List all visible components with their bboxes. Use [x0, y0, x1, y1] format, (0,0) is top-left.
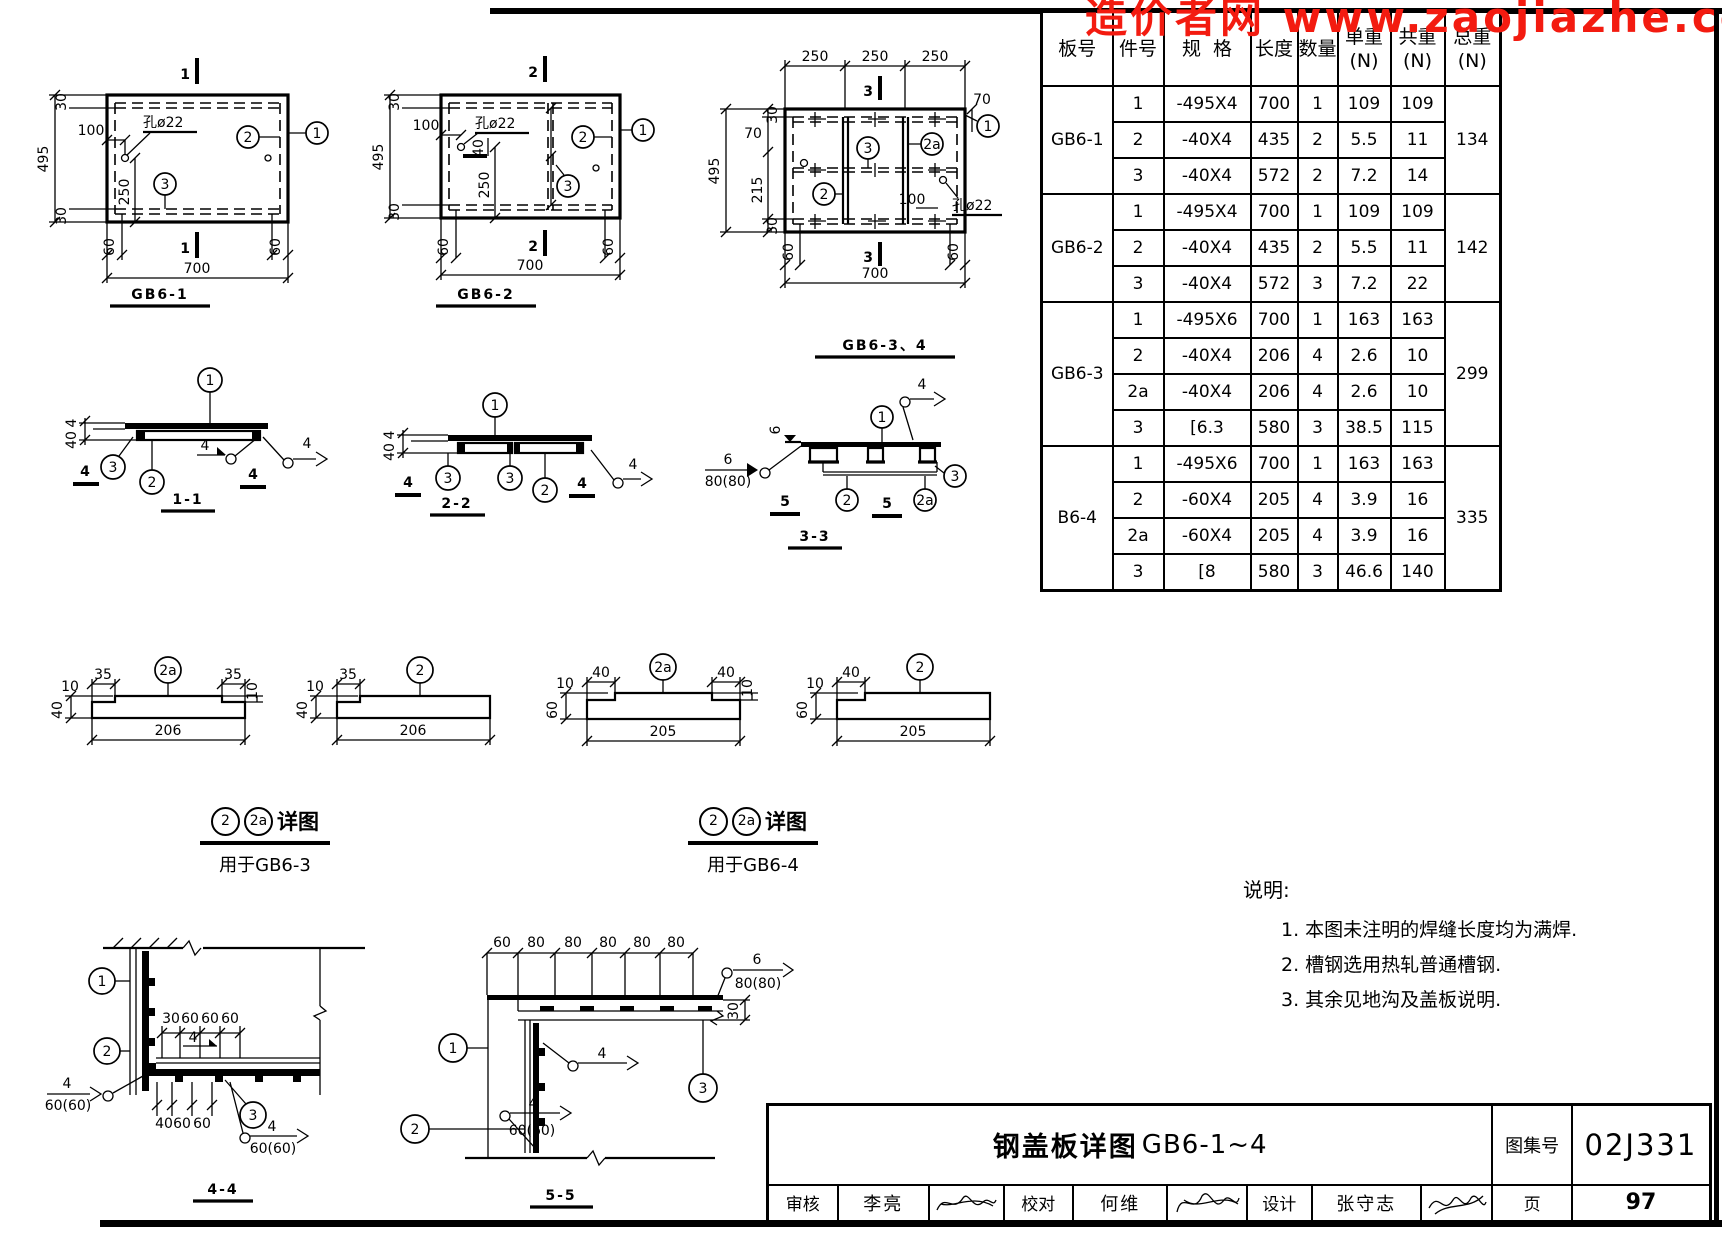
signature-icon — [1172, 1188, 1242, 1218]
callout-2a: 2a — [923, 137, 941, 153]
dim-100: 100 — [899, 192, 926, 208]
dim-10-left: 10 — [806, 676, 824, 692]
sum-b6-4: 335 — [1445, 446, 1501, 591]
dim-700: 700 — [517, 258, 544, 274]
cut-right: 4 — [577, 476, 587, 492]
dim-215: 215 — [750, 177, 766, 204]
callouts: 3 3 2 — [436, 453, 557, 502]
dim-60: 60 — [493, 935, 511, 951]
sheet-title: 钢盖板详图 — [993, 1125, 1138, 1164]
sum-gb6-3: 299 — [1445, 302, 1501, 446]
check-label: 校对 — [1005, 1186, 1075, 1220]
dim-top-60c: 60 — [221, 1011, 239, 1027]
weld-right-num: 4 — [268, 1119, 277, 1135]
plate-section — [125, 423, 268, 440]
board-gb6-2: GB6-2 — [1042, 194, 1113, 302]
dim-60-left: 60 — [436, 238, 452, 256]
dim-40-left: 40 — [592, 665, 610, 681]
cut-right: 5 — [882, 496, 892, 512]
dim-10-left: 10 — [306, 679, 324, 695]
dim-30: 30 — [726, 1002, 742, 1020]
dim-30-bottom: 30 — [54, 207, 70, 225]
weld-6-den: 80(80) — [735, 976, 782, 992]
cut-label-top: 3 — [863, 84, 873, 100]
callout-3: 3 — [864, 141, 873, 157]
callout-3a: 3 — [444, 471, 453, 487]
dim-250-2: 250 — [862, 49, 889, 65]
drawing-gb6-2-plan: 2 2 495 30 30 100 40 250 60 60 700 孔ø22 … — [338, 40, 658, 315]
dimensions: 4 40 — [64, 416, 137, 449]
reviewer-name: 李亮 — [839, 1186, 930, 1220]
drawing-sheet: 造价者网 www.zaojiazhe.co 1 1 495 30 30 100 … — [0, 0, 1722, 1234]
section-label: 3-3 — [799, 529, 830, 545]
section-cut-marks: 3 3 — [863, 76, 882, 266]
design-label: 设计 — [1248, 1186, 1313, 1220]
drawing-detail-2-gb63: 2 35 10 40 206 — [280, 583, 505, 753]
dim-10-left: 10 — [556, 676, 574, 692]
designer-signature — [1422, 1186, 1494, 1220]
signature-icon — [933, 1188, 999, 1218]
dim-60: 60 — [795, 701, 811, 719]
cut-label-top: 2 — [528, 65, 538, 81]
dim-10-left: 10 — [61, 679, 79, 695]
dim-35-left: 35 — [94, 667, 112, 683]
callout-2a-badge: 2a — [244, 807, 273, 836]
callout-2: 2 — [411, 1122, 420, 1138]
weld-symbols: 4 6 80(80) — [705, 377, 945, 490]
section-label: 5-5 — [545, 1188, 576, 1204]
cut-left: 4 — [80, 464, 90, 480]
callout-2a: 2a — [654, 660, 672, 676]
weld-6-num: 6 — [753, 952, 762, 968]
hole-label: 孔ø22 — [143, 115, 183, 131]
dim-35-left: 35 — [339, 667, 357, 683]
dim-top-60b: 60 — [201, 1011, 219, 1027]
dim-700: 700 — [184, 261, 211, 277]
table-row: GB6-1 1-495X47001109109 134 — [1042, 86, 1501, 122]
atlas-number-cell: 02J331 — [1573, 1106, 1709, 1184]
dim-80d: 80 — [633, 935, 651, 951]
dim-40: 40 — [295, 701, 311, 719]
callout-2-badge: 2 — [699, 807, 728, 836]
callout-1: 1 — [206, 373, 215, 389]
weld-size-2: 4 — [303, 436, 312, 452]
section-cut-marks: 1 1 — [180, 58, 199, 258]
dimensions: 4 40 — [382, 428, 458, 461]
frame-right-line — [1714, 8, 1719, 1224]
callout-1: 1 — [984, 119, 993, 135]
callout-3: 3 — [249, 1108, 258, 1124]
weld-size: 4 — [629, 457, 638, 473]
sum-gb6-1: 134 — [1445, 86, 1501, 194]
callout-3: 3 — [564, 179, 573, 195]
drawing-detail-2a-gb63: 2a 35 35 10 40 10 206 — [35, 583, 270, 753]
dim-100: 100 — [413, 118, 440, 134]
callout-1: 1 — [639, 123, 648, 139]
dim-bot-40: 40 — [155, 1116, 173, 1132]
detail-caption-text: 详图 — [277, 806, 319, 836]
board-gb6-3: GB6-3 — [1042, 302, 1113, 446]
drawing-detail-2-gb64: 2 40 10 60 205 — [780, 583, 1005, 753]
callout-2: 2 — [244, 130, 253, 146]
weld-mid: 4 — [189, 1030, 198, 1046]
caption-underline — [200, 841, 330, 845]
cut-label-bottom: 1 — [180, 241, 190, 257]
callout-2: 2 — [820, 187, 829, 203]
dimensions: 40 10 60 205 — [795, 665, 995, 746]
weld-6-num: 6 — [724, 452, 733, 468]
weld-left-num: 4 — [63, 1076, 72, 1092]
dim-60-right: 60 — [268, 238, 284, 256]
table-row: GB6-3 1-495X67001163163 299 — [1042, 302, 1501, 338]
dim-35-right: 35 — [224, 667, 242, 683]
callout-1: 1 — [491, 398, 500, 414]
checker-name: 何维 — [1074, 1186, 1168, 1220]
dim-4: 4 — [64, 418, 80, 427]
notes-block: 说明: 1. 本图未注明的焊缝长度均为满焊. 2. 槽钢选用热轧普通槽钢. 3.… — [1243, 874, 1663, 1018]
dim-60-left: 60 — [102, 238, 118, 256]
dim-30-top: 30 — [765, 106, 781, 124]
dim-30-bottom: 30 — [387, 203, 403, 221]
note-item-1: 1. 本图未注明的焊缝长度均为满焊. — [1281, 913, 1663, 948]
dim-250-3: 250 — [922, 49, 949, 65]
signature-icon — [1425, 1188, 1489, 1218]
dim-60-right: 60 — [601, 238, 617, 256]
weld-low-num: 4 — [529, 1096, 538, 1112]
dim-top-60a: 60 — [181, 1011, 199, 1027]
callout-2: 2 — [541, 483, 550, 499]
page-number: 97 — [1573, 1186, 1709, 1220]
dim-bot-60a: 60 — [173, 1116, 191, 1132]
dim-30-top: 30 — [54, 93, 70, 111]
drawing-gb6-1-plan: 1 1 495 30 30 100 250 60 60 700 孔ø22 2 — [35, 40, 335, 315]
callout-3b: 3 — [506, 471, 515, 487]
drawing-detail-2a-gb64: 2a 40 40 10 60 10 205 — [530, 583, 775, 753]
plate-section — [448, 435, 592, 453]
callout-1: 1 — [98, 974, 107, 990]
dim-10-right: 10 — [245, 682, 261, 700]
dim-70-left: 70 — [744, 126, 762, 142]
atlas-label-cell: 图集号 — [1493, 1106, 1573, 1184]
section-label: 2-2 — [441, 496, 472, 512]
weld-4: 4 — [918, 377, 927, 393]
plate-outline — [785, 109, 965, 232]
weld-size-1: 4 — [201, 438, 210, 454]
designer-name: 张守志 — [1313, 1186, 1422, 1220]
callouts: 2 1 3 — [556, 119, 654, 197]
board-gb6-1: GB6-1 — [1042, 86, 1113, 194]
section-cut-marks: 2 2 — [528, 56, 547, 256]
dim-80a: 80 — [527, 935, 545, 951]
drawing-gb6-3-4-plan: 3 3 250 250 250 30 70 495 215 30 70 100 … — [650, 20, 1010, 320]
dim-6: 6 — [768, 425, 784, 434]
callout-2: 2 — [148, 475, 157, 491]
hole-label: 孔ø22 — [475, 116, 515, 132]
dimensions-top: 60 80 80 80 80 80 — [482, 935, 698, 995]
weld-symbols: 4 — [591, 450, 652, 488]
plan-title-gb634: GB6-3、4 — [842, 338, 927, 354]
drawing-section-5-5: 60 80 80 80 80 80 6 — [365, 848, 795, 1212]
watermark-text: 造价者网 www.zaojiazhe.co — [1085, 0, 1722, 45]
callout-2-badge: 2 — [211, 807, 240, 836]
title-block: 钢盖板详图 GB6-1~4 图集号 02J331 审核 李亮 校对 何维 设计 … — [766, 1103, 1712, 1223]
dim-205: 205 — [650, 724, 677, 740]
dim-40: 40 — [50, 701, 66, 719]
cut-left: 4 — [403, 475, 413, 491]
dim-495: 495 — [371, 144, 387, 171]
weld-6-den: 80(80) — [705, 474, 752, 490]
dimensions: 40 40 10 60 10 205 — [545, 665, 758, 746]
callout-2a: 2a — [916, 493, 934, 509]
plate-section: 6 — [768, 425, 941, 475]
note-item-2: 2. 槽钢选用热轧普通槽钢. — [1281, 948, 1663, 983]
sheet-title-cell: 钢盖板详图 GB6-1~4 — [769, 1106, 1493, 1184]
callout-1: 1 — [449, 1041, 458, 1057]
dim-40: 40 — [382, 443, 398, 461]
callouts: 1 2 3 — [401, 1020, 717, 1143]
plan-title: GB6-2 — [457, 287, 514, 303]
board-b6-4: B6-4 — [1042, 446, 1113, 591]
material-schedule-table: 板号 件号 规 格 长度 数量 单重(N) 共重(N) 总重(N) GB6-1 … — [1040, 10, 1502, 592]
callout-3: 3 — [699, 1081, 708, 1097]
cut-left: 5 — [780, 494, 790, 510]
dim-60: 60 — [545, 701, 561, 719]
dim-10-right: 10 — [740, 679, 756, 697]
sum-gb6-2: 142 — [1445, 194, 1501, 302]
atlas-number: 02J331 — [1585, 1128, 1698, 1162]
drawing-section-4-4: 30 60 60 60 40 60 60 4 4 60(60) 4 60(60)… — [35, 848, 370, 1206]
dim-80c: 80 — [599, 935, 617, 951]
weld-left-den: 60(60) — [45, 1098, 92, 1114]
callouts: 3 2 — [101, 437, 164, 494]
dim-60-right: 60 — [946, 243, 962, 261]
dim-700: 700 — [862, 266, 889, 282]
cut-right: 4 — [248, 467, 258, 483]
dim-top-30: 30 — [162, 1011, 180, 1027]
callout-2: 2 — [843, 493, 852, 509]
callout-1: 1 — [878, 410, 887, 426]
cut-marks: 4 4 — [395, 475, 595, 498]
drawing-section-1-1: 1 4 40 3 2 4 4 4 4 — [35, 335, 335, 520]
dim-40: 40 — [471, 139, 487, 157]
callouts: 2 1 3 — [154, 122, 328, 209]
notes-title: 说明: — [1243, 874, 1663, 903]
callout-3: 3 — [161, 177, 170, 193]
dim-30-bottom: 30 — [765, 217, 781, 235]
plan-title: GB6-1 — [131, 287, 188, 303]
dim-495: 495 — [36, 146, 52, 173]
callout-2: 2 — [416, 663, 425, 679]
dim-206: 206 — [400, 723, 427, 739]
hole-label: 孔ø22 — [952, 198, 992, 214]
table-row: GB6-2 1-495X47001109109 142 — [1042, 194, 1501, 230]
drawing-section-3-3: GB6-3、4 6 1 3 2 2a — [650, 326, 990, 558]
corner-assembly — [465, 995, 723, 1165]
dim-bot-60b: 60 — [193, 1116, 211, 1132]
callout-2: 2 — [916, 660, 925, 676]
cut-label-top: 1 — [180, 67, 190, 83]
reviewer-signature — [930, 1186, 1005, 1220]
dim-205: 205 — [900, 724, 927, 740]
dim-60-left: 60 — [781, 243, 797, 261]
callouts: 1 3 2 2a — [836, 406, 966, 511]
dim-250-1: 250 — [802, 49, 829, 65]
table-row: B6-4 1-495X67001163163 335 — [1042, 446, 1501, 482]
section-label: 4-4 — [207, 1182, 238, 1198]
checker-signature — [1168, 1186, 1248, 1220]
dimensions: 35 35 10 40 10 206 — [50, 667, 263, 745]
weld-right-den: 60(60) — [250, 1141, 297, 1157]
drawing-section-2-2: 1 4 40 3 3 2 4 4 4 2-2 — [345, 335, 655, 520]
dim-80e: 80 — [667, 935, 685, 951]
dim-495: 495 — [707, 158, 723, 185]
caption-underline — [688, 841, 818, 845]
cut-label-bottom: 2 — [528, 239, 538, 255]
note-item-3: 3. 其余见地沟及盖板说明. — [1281, 983, 1663, 1018]
sheet-title-code: GB6-1~4 — [1142, 1130, 1268, 1160]
callout-3: 3 — [951, 469, 960, 485]
dimensions: 35 10 40 206 — [295, 667, 495, 745]
callout-2: 2 — [579, 130, 588, 146]
weld-low-den: 60(60) — [509, 1123, 556, 1139]
dim-206: 206 — [155, 723, 182, 739]
dim-40: 40 — [64, 431, 80, 449]
dim-40-left: 40 — [842, 665, 860, 681]
plate-outline — [441, 95, 620, 218]
page-label: 页 — [1493, 1186, 1573, 1220]
dim-80b: 80 — [564, 935, 582, 951]
dim-40-right: 40 — [717, 665, 735, 681]
section-label: 1-1 — [172, 492, 203, 508]
callout-2a-badge: 2a — [732, 807, 761, 836]
dim-250: 250 — [477, 172, 493, 199]
review-label: 审核 — [769, 1186, 839, 1220]
callout-2a: 2a — [159, 663, 177, 679]
callout-2: 2 — [103, 1044, 112, 1060]
dim-30-top: 30 — [387, 93, 403, 111]
dim-250: 250 — [117, 179, 133, 206]
callout-3: 3 — [109, 460, 118, 476]
dim-70-right: 70 — [973, 92, 991, 108]
weld-symbols: 4 4 60(60) 4 60(60) — [45, 1030, 308, 1157]
callout-1: 1 — [313, 126, 322, 142]
dim-100: 100 — [78, 123, 105, 139]
dim-4: 4 — [382, 430, 398, 439]
cut-label-bottom: 3 — [863, 250, 873, 266]
detail-caption-text: 详图 — [765, 806, 807, 836]
weld-4: 4 — [598, 1046, 607, 1062]
